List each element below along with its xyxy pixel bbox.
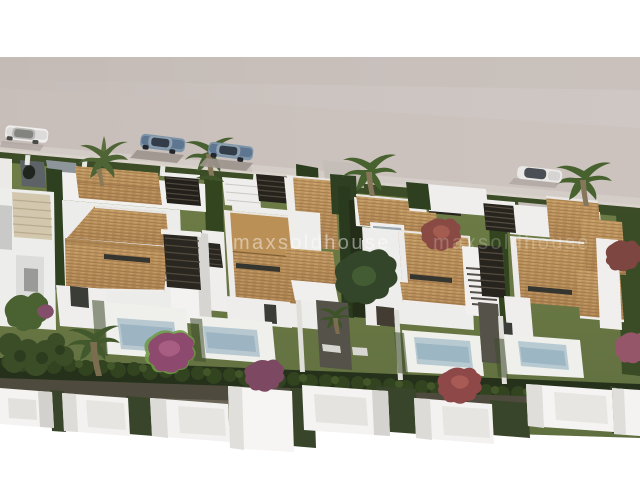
svg-text:maxsoldhouse: maxsoldhouse bbox=[433, 232, 591, 254]
svg-text:maxsoldhouse: maxsoldhouse bbox=[233, 232, 391, 254]
